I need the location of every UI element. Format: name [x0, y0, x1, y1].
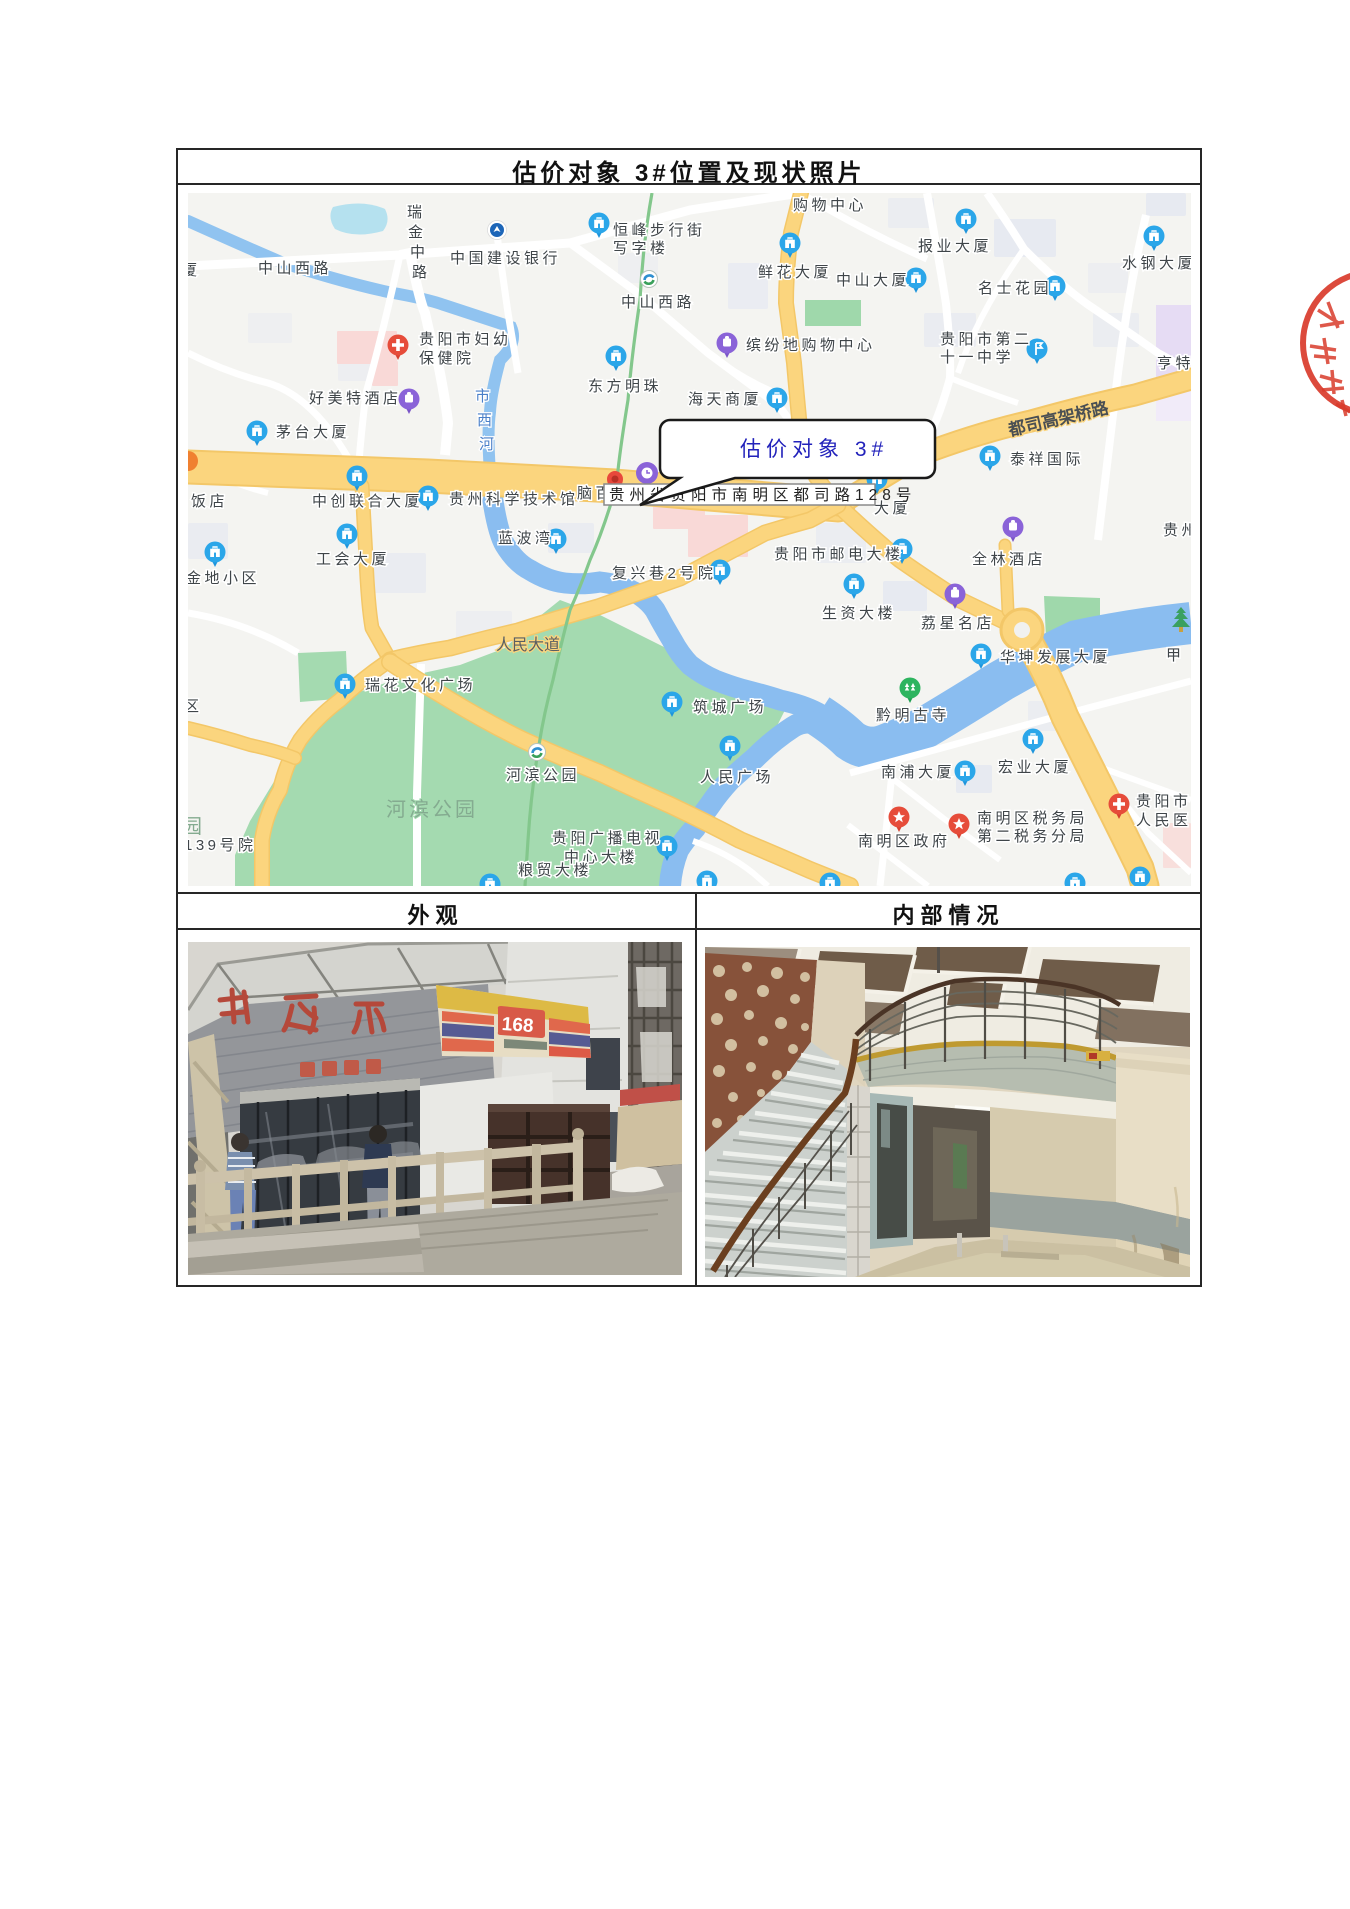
svg-text:饭店: 饭店 [191, 493, 228, 510]
svg-text:贵阳市第二: 贵阳市第二 [940, 330, 1033, 348]
svg-text:水钢大厦: 水钢大厦 [1122, 255, 1191, 272]
svg-text:园: 园 [188, 816, 202, 838]
svg-text:保健院: 保健院 [419, 349, 475, 367]
svg-text:贵阳广播电视: 贵阳广播电视 [552, 830, 663, 847]
svg-text:西: 西 [477, 412, 492, 429]
svg-text:宏业大厦: 宏业大厦 [998, 759, 1072, 776]
svg-text:荔星名店: 荔星名店 [921, 615, 995, 632]
svg-text:报业大厦: 报业大厦 [918, 238, 992, 255]
svg-text:厦: 厦 [188, 262, 201, 279]
svg-text:第二税务分局: 第二税务分局 [977, 827, 1088, 845]
svg-text:华坤发展大厦: 华坤发展大厦 [1000, 649, 1111, 666]
svg-text:中: 中 [410, 244, 425, 261]
svg-text:缤纷地购物中心: 缤纷地购物中心 [746, 337, 876, 354]
svg-text:金: 金 [408, 224, 423, 241]
svg-text:中山西路: 中山西路 [258, 260, 332, 277]
svg-text:139号院: 139号院 [188, 836, 257, 854]
svg-text:购物中心: 购物中心 [793, 197, 867, 214]
svg-text:路: 路 [412, 264, 427, 281]
svg-text:贵阳市邮电大楼: 贵阳市邮电大楼 [774, 546, 904, 563]
svg-text:瑞花文化广场: 瑞花文化广场 [365, 677, 476, 694]
svg-text:工会大厦: 工会大厦 [316, 551, 390, 568]
svg-text:贵州: 贵州 [1163, 522, 1191, 539]
svg-text:泰祥国际: 泰祥国际 [1010, 451, 1084, 468]
svg-text:南明区政府: 南明区政府 [858, 833, 951, 850]
svg-text:区: 区 [188, 698, 203, 715]
svg-text:南浦大厦: 南浦大厦 [881, 764, 955, 781]
svg-text:市: 市 [475, 388, 490, 405]
svg-text:金地小区: 金地小区 [188, 570, 260, 587]
svg-text:瑞: 瑞 [407, 204, 422, 221]
svg-text:十一中学: 十一中学 [940, 349, 1014, 366]
svg-text:粮贸大楼: 粮贸大楼 [518, 862, 592, 879]
svg-text:东方明珠: 东方明珠 [588, 378, 662, 395]
svg-text:贵州科学技术馆: 贵州科学技术馆 [449, 491, 579, 508]
svg-text:中山西路: 中山西路 [621, 294, 695, 311]
svg-text:恒峰步行街: 恒峰步行街 [613, 222, 706, 239]
svg-text:贵阳市妇幼: 贵阳市妇幼 [419, 331, 512, 348]
svg-text:写字楼: 写字楼 [613, 240, 669, 257]
svg-text:名士花园: 名士花园 [978, 280, 1052, 297]
svg-text:海天商厦: 海天商厦 [688, 391, 762, 408]
svg-text:中山大厦: 中山大厦 [836, 272, 910, 289]
svg-text:鲜花大厦: 鲜花大厦 [758, 264, 832, 281]
svg-text:人民大道: 人民大道 [496, 636, 560, 654]
svg-text:贵阳市南: 贵阳市南 [1136, 793, 1191, 810]
svg-text:河滨公园: 河滨公园 [386, 798, 478, 821]
svg-text:黔明古寺: 黔明古寺 [876, 707, 950, 724]
svg-text:河滨公园: 河滨公园 [506, 767, 580, 784]
svg-text:中创联合大厦: 中创联合大厦 [312, 493, 423, 510]
svg-text:甲: 甲 [1166, 647, 1185, 664]
svg-text:复兴巷2号院: 复兴巷2号院 [612, 564, 716, 582]
svg-text:中国建设银行: 中国建设银行 [450, 250, 561, 267]
svg-text:人民广场: 人民广场 [700, 769, 774, 786]
svg-text:全林酒店: 全林酒店 [972, 550, 1046, 568]
svg-text:好美特酒店: 好美特酒店 [309, 390, 402, 407]
svg-text:168: 168 [501, 1014, 534, 1037]
svg-text:人民医院: 人民医院 [1136, 811, 1191, 829]
svg-text:生资大楼: 生资大楼 [822, 605, 896, 622]
svg-text:筑城广场: 筑城广场 [693, 699, 767, 716]
svg-text:亨特: 亨特 [1157, 355, 1191, 372]
svg-text:蓝波湾: 蓝波湾 [498, 530, 554, 547]
svg-text:河: 河 [479, 436, 494, 453]
svg-text:估价对象 3#: 估价对象 3# [740, 438, 888, 461]
svg-text:茅台大厦: 茅台大厦 [276, 424, 350, 441]
svg-text:南明区税务局: 南明区税务局 [977, 810, 1088, 827]
